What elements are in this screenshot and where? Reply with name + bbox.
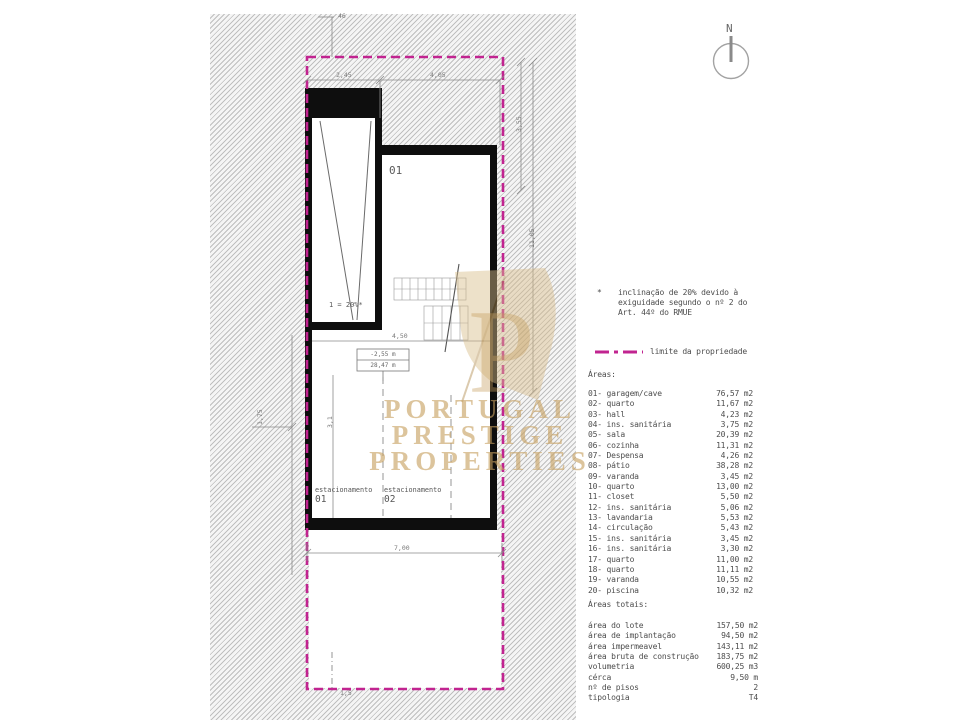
area-id: 16- xyxy=(588,544,602,553)
table-row: 19- varanda10,55 m2 xyxy=(588,575,753,585)
area-id: 07- xyxy=(588,451,602,460)
parking-space-1: estacionamento 01 xyxy=(315,487,372,504)
area-id: 05- xyxy=(588,430,602,439)
parking-1-label: estacionamento xyxy=(315,487,372,494)
area-id: 17- xyxy=(588,555,602,564)
area-id: 12- xyxy=(588,503,602,512)
left-wall xyxy=(305,88,312,530)
parking-1-number: 01 xyxy=(315,495,372,505)
north-label: N xyxy=(726,22,733,35)
level-bottom-value: 28,47 m xyxy=(359,362,407,369)
area-id: 10- xyxy=(588,482,602,491)
areas-title: Áreas: xyxy=(588,370,616,380)
area-value: 10,32 m2 xyxy=(716,586,753,596)
area-id: 09- xyxy=(588,472,602,481)
total-value: 600,25 m3 xyxy=(716,662,758,672)
area-value: 76,57 m2 xyxy=(716,389,753,399)
room01-label: 01 xyxy=(389,164,402,177)
area-name: cozinha xyxy=(606,441,638,450)
area-name: quarto xyxy=(606,565,634,574)
total-name: área bruta de construção xyxy=(588,652,699,662)
area-name: lavandaria xyxy=(606,513,652,522)
area-name: ins. sanitária xyxy=(606,534,671,543)
dim-courtyard: 1,5 xyxy=(340,690,352,697)
area-value: 11,31 m2 xyxy=(716,441,753,451)
table-row: 10- quarto13,00 m2 xyxy=(588,482,753,492)
area-name: ins. sanitária xyxy=(606,544,671,553)
area-value: 3,45 m2 xyxy=(721,472,753,482)
table-row: 05- sala20,39 m2 xyxy=(588,430,753,440)
dim-inner-width: 4,50 xyxy=(392,333,408,340)
area-name: piscina xyxy=(606,586,638,595)
area-name: closet xyxy=(606,492,634,501)
area-id: 03- xyxy=(588,410,602,419)
area-name: pátio xyxy=(606,461,629,470)
area-id: 19- xyxy=(588,575,602,584)
totals-table: área do lote157,50 m2 área de implantaçã… xyxy=(588,621,758,704)
area-value: 4,23 m2 xyxy=(721,410,753,420)
dim-bottom-width: 7,00 xyxy=(394,545,410,552)
north-arrow xyxy=(714,36,749,79)
area-value: 5,50 m2 xyxy=(721,492,753,502)
garage-header-wall xyxy=(305,88,382,118)
area-id: 11- xyxy=(588,492,602,501)
total-name: tipologia xyxy=(588,693,630,703)
dim-right-upper: 3,55 xyxy=(516,116,523,132)
area-value: 3,30 m2 xyxy=(721,544,753,554)
total-name: área do lote xyxy=(588,621,643,631)
area-value: 38,28 m2 xyxy=(716,461,753,471)
area-id: 01- xyxy=(588,389,602,398)
watermark-line-2: PROPERTIES xyxy=(330,448,630,474)
table-row: 13- lavandaria5,53 m2 xyxy=(588,513,753,523)
bottom-wall xyxy=(305,518,497,530)
area-id: 02- xyxy=(588,399,602,408)
parking-2-number: 02 xyxy=(384,495,441,505)
table-row: tipologiaT4 xyxy=(588,693,758,703)
total-value: 2 xyxy=(753,683,758,693)
table-row: 02- quarto11,67 m2 xyxy=(588,399,753,409)
table-row: 08- pátio38,28 m2 xyxy=(588,461,753,471)
total-value: 143,11 m2 xyxy=(716,642,758,652)
area-name: ins. sanitária xyxy=(606,420,671,429)
table-row: nº de pisos2 xyxy=(588,683,758,693)
watermark-line-1: PORTUGAL PRESTIGE xyxy=(330,396,630,448)
dim-right-lower: 11,05 xyxy=(529,228,536,248)
table-row: volumetria600,25 m3 xyxy=(588,662,758,672)
table-row: 14- circulação5,43 m2 xyxy=(588,523,753,533)
area-name: ins. sanitária xyxy=(606,503,671,512)
area-id: 04- xyxy=(588,420,602,429)
boundary-legend-label: limite da propriedade xyxy=(650,347,747,357)
table-row: 12- ins. sanitária5,06 m2 xyxy=(588,503,753,513)
parking-space-2: estacionamento 02 xyxy=(384,487,441,504)
area-value: 20,39 m2 xyxy=(716,430,753,440)
dim-top-tick: 46 xyxy=(338,13,346,20)
total-value: 9,50 m xyxy=(730,673,758,683)
table-row: 15- ins. sanitária3,45 m2 xyxy=(588,534,753,544)
total-value: 94,50 m2 xyxy=(721,631,758,641)
area-name: Despensa xyxy=(606,451,643,460)
note-line-2: exiguidade segundo o nº 2 do xyxy=(618,298,747,308)
area-id: 14- xyxy=(588,523,602,532)
total-name: área de implantação xyxy=(588,631,676,641)
area-name: garagem/cave xyxy=(606,389,661,398)
area-value: 5,06 m2 xyxy=(721,503,753,513)
table-row: 03- hall4,23 m2 xyxy=(588,410,753,420)
area-name: sala xyxy=(606,430,624,439)
area-name: quarto xyxy=(606,555,634,564)
area-id: 06- xyxy=(588,441,602,450)
area-value: 10,55 m2 xyxy=(716,575,753,585)
room01-top-wall xyxy=(375,145,497,155)
total-name: área impermeavel xyxy=(588,642,662,652)
areas-table: 01- garagem/cave76,57 m2 02- quarto11,67… xyxy=(588,389,753,596)
note-bullet: * xyxy=(597,288,602,298)
dim-top-right: 4,05 xyxy=(430,72,446,79)
area-value: 11,11 m2 xyxy=(716,565,753,575)
note-line-1: inclinação de 20% devido à xyxy=(618,288,747,298)
area-id: 08- xyxy=(588,461,602,470)
totals-title: Áreas totais: xyxy=(588,600,648,610)
area-value: 11,00 m2 xyxy=(716,555,753,565)
dim-left-height: 1,75 xyxy=(257,409,264,425)
table-row: 11- closet5,50 m2 xyxy=(588,492,753,502)
area-value: 11,67 m2 xyxy=(716,399,753,409)
total-value: 157,50 m2 xyxy=(716,621,758,631)
area-value: 3,75 m2 xyxy=(721,420,753,430)
table-row: 16- ins. sanitária3,30 m2 xyxy=(588,544,753,554)
level-top-value: -2,55 m xyxy=(359,351,407,358)
total-value: 183,75 m2 xyxy=(716,652,758,662)
note-line-3: Art. 44º do RMUE xyxy=(618,308,747,318)
area-name: varanda xyxy=(606,472,638,481)
area-id: 20- xyxy=(588,586,602,595)
site-plan-page: P 01 1 = 20%* -2,55 m 28,47 m estacionam… xyxy=(0,0,963,720)
watermark-text: PORTUGAL PRESTIGE PROPERTIES xyxy=(330,396,630,474)
table-row: 04- ins. sanitária3,75 m2 xyxy=(588,420,753,430)
area-id: 13- xyxy=(588,513,602,522)
area-value: 13,00 m2 xyxy=(716,482,753,492)
table-row: 06- cozinha11,31 m2 xyxy=(588,441,753,451)
table-row: cérca9,50 m xyxy=(588,673,758,683)
table-row: 20- piscina10,32 m2 xyxy=(588,586,753,596)
ramp-slope-label: 1 = 20%* xyxy=(329,301,363,309)
table-row: área bruta de construção183,75 m2 xyxy=(588,652,758,662)
table-row: área do lote157,50 m2 xyxy=(588,621,758,631)
area-value: 5,53 m2 xyxy=(721,513,753,523)
note-block: inclinação de 20% devido à exiguidade se… xyxy=(618,288,747,318)
total-name: nº de pisos xyxy=(588,683,639,693)
area-id: 15- xyxy=(588,534,602,543)
area-id: 18- xyxy=(588,565,602,574)
area-value: 5,43 m2 xyxy=(721,523,753,533)
area-name: quarto xyxy=(606,482,634,491)
area-value: 3,45 m2 xyxy=(721,534,753,544)
table-row: 07- Despensa4,26 m2 xyxy=(588,451,753,461)
dim-top-left: 2,45 xyxy=(336,72,352,79)
area-name: hall xyxy=(606,410,624,419)
courtyard-interior xyxy=(309,530,501,688)
total-name: cérca xyxy=(588,673,611,683)
parking-2-label: estacionamento xyxy=(384,487,441,494)
ramp-bottom-wall xyxy=(305,322,382,330)
table-row: 17- quarto11,00 m2 xyxy=(588,555,753,565)
table-row: 18- quarto11,11 m2 xyxy=(588,565,753,575)
table-row: 01- garagem/cave76,57 m2 xyxy=(588,389,753,399)
table-row: 09- varanda3,45 m2 xyxy=(588,472,753,482)
area-name: circulação xyxy=(606,523,652,532)
area-name: quarto xyxy=(606,399,634,408)
total-name: volumetria xyxy=(588,662,634,672)
table-row: área impermeavel143,11 m2 xyxy=(588,642,758,652)
table-row: área de implantação94,50 m2 xyxy=(588,631,758,641)
area-value: 4,26 m2 xyxy=(721,451,753,461)
area-name: varanda xyxy=(606,575,638,584)
total-value: T4 xyxy=(749,693,758,703)
